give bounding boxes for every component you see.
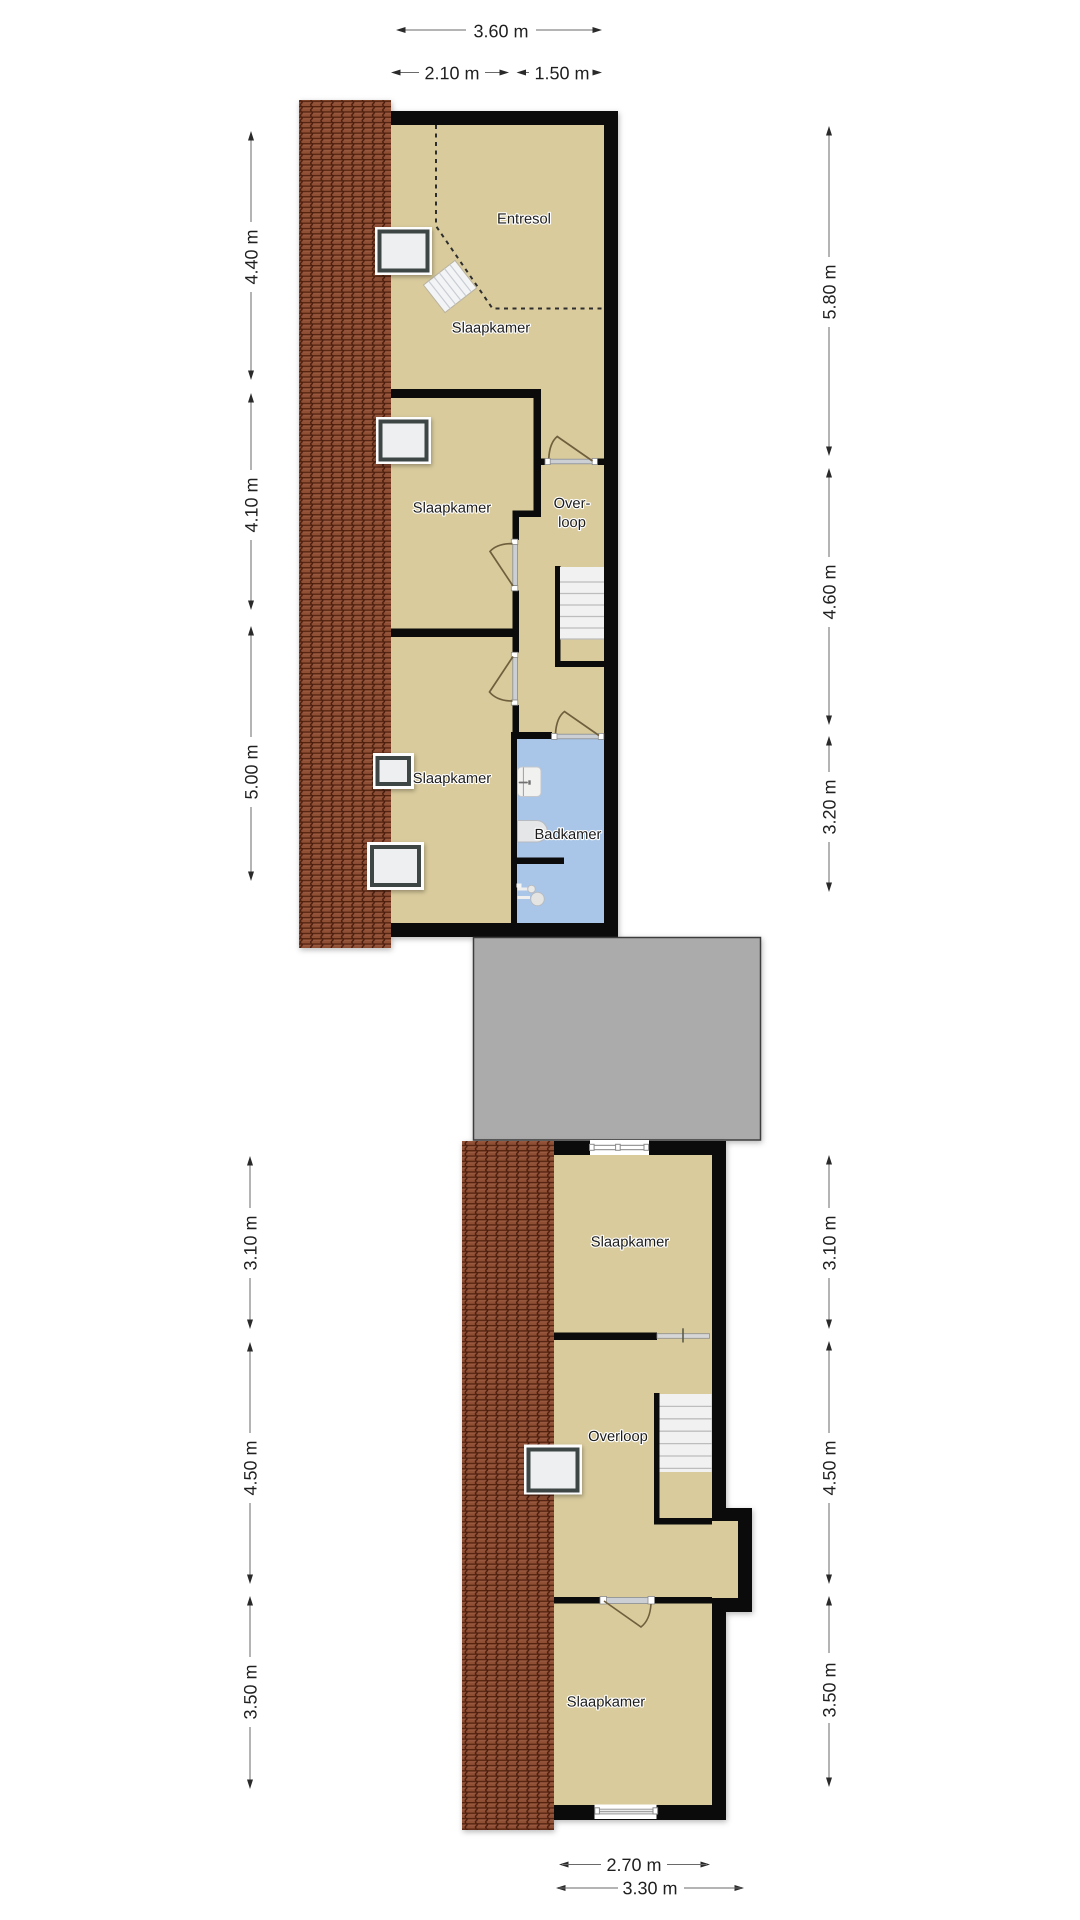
svg-text:loop: loop — [558, 515, 586, 531]
svg-text:3.10 m: 3.10 m — [819, 1215, 839, 1270]
svg-text:Badkamer: Badkamer — [535, 827, 602, 843]
svg-text:Slaapkamer: Slaapkamer — [413, 500, 492, 516]
svg-text:4.10 m: 4.10 m — [241, 477, 261, 532]
svg-text:Entresol: Entresol — [497, 211, 551, 227]
svg-text:4.50 m: 4.50 m — [240, 1440, 260, 1495]
svg-text:4.60 m: 4.60 m — [819, 564, 839, 619]
svg-text:Overloop: Overloop — [588, 1429, 648, 1445]
svg-text:5.80 m: 5.80 m — [819, 264, 839, 319]
svg-text:1.50 m: 1.50 m — [534, 63, 589, 83]
svg-text:3.60 m: 3.60 m — [473, 21, 528, 41]
svg-text:2.70 m: 2.70 m — [606, 1855, 661, 1875]
svg-text:3.50 m: 3.50 m — [819, 1662, 839, 1717]
svg-text:Slaapkamer: Slaapkamer — [591, 1234, 670, 1250]
svg-text:4.50 m: 4.50 m — [819, 1440, 839, 1495]
svg-text:3.30 m: 3.30 m — [622, 1878, 677, 1898]
svg-text:3.10 m: 3.10 m — [240, 1215, 260, 1270]
svg-text:2.10 m: 2.10 m — [424, 63, 479, 83]
svg-text:Slaapkamer: Slaapkamer — [413, 771, 492, 787]
svg-text:3.20 m: 3.20 m — [819, 779, 839, 834]
svg-text:4.40 m: 4.40 m — [241, 229, 261, 284]
svg-text:5.00 m: 5.00 m — [241, 744, 261, 799]
svg-text:Slaapkamer: Slaapkamer — [567, 1694, 646, 1710]
svg-text:3.50 m: 3.50 m — [240, 1664, 260, 1719]
svg-text:Slaapkamer: Slaapkamer — [452, 320, 531, 336]
svg-text:Over-: Over- — [554, 496, 591, 512]
